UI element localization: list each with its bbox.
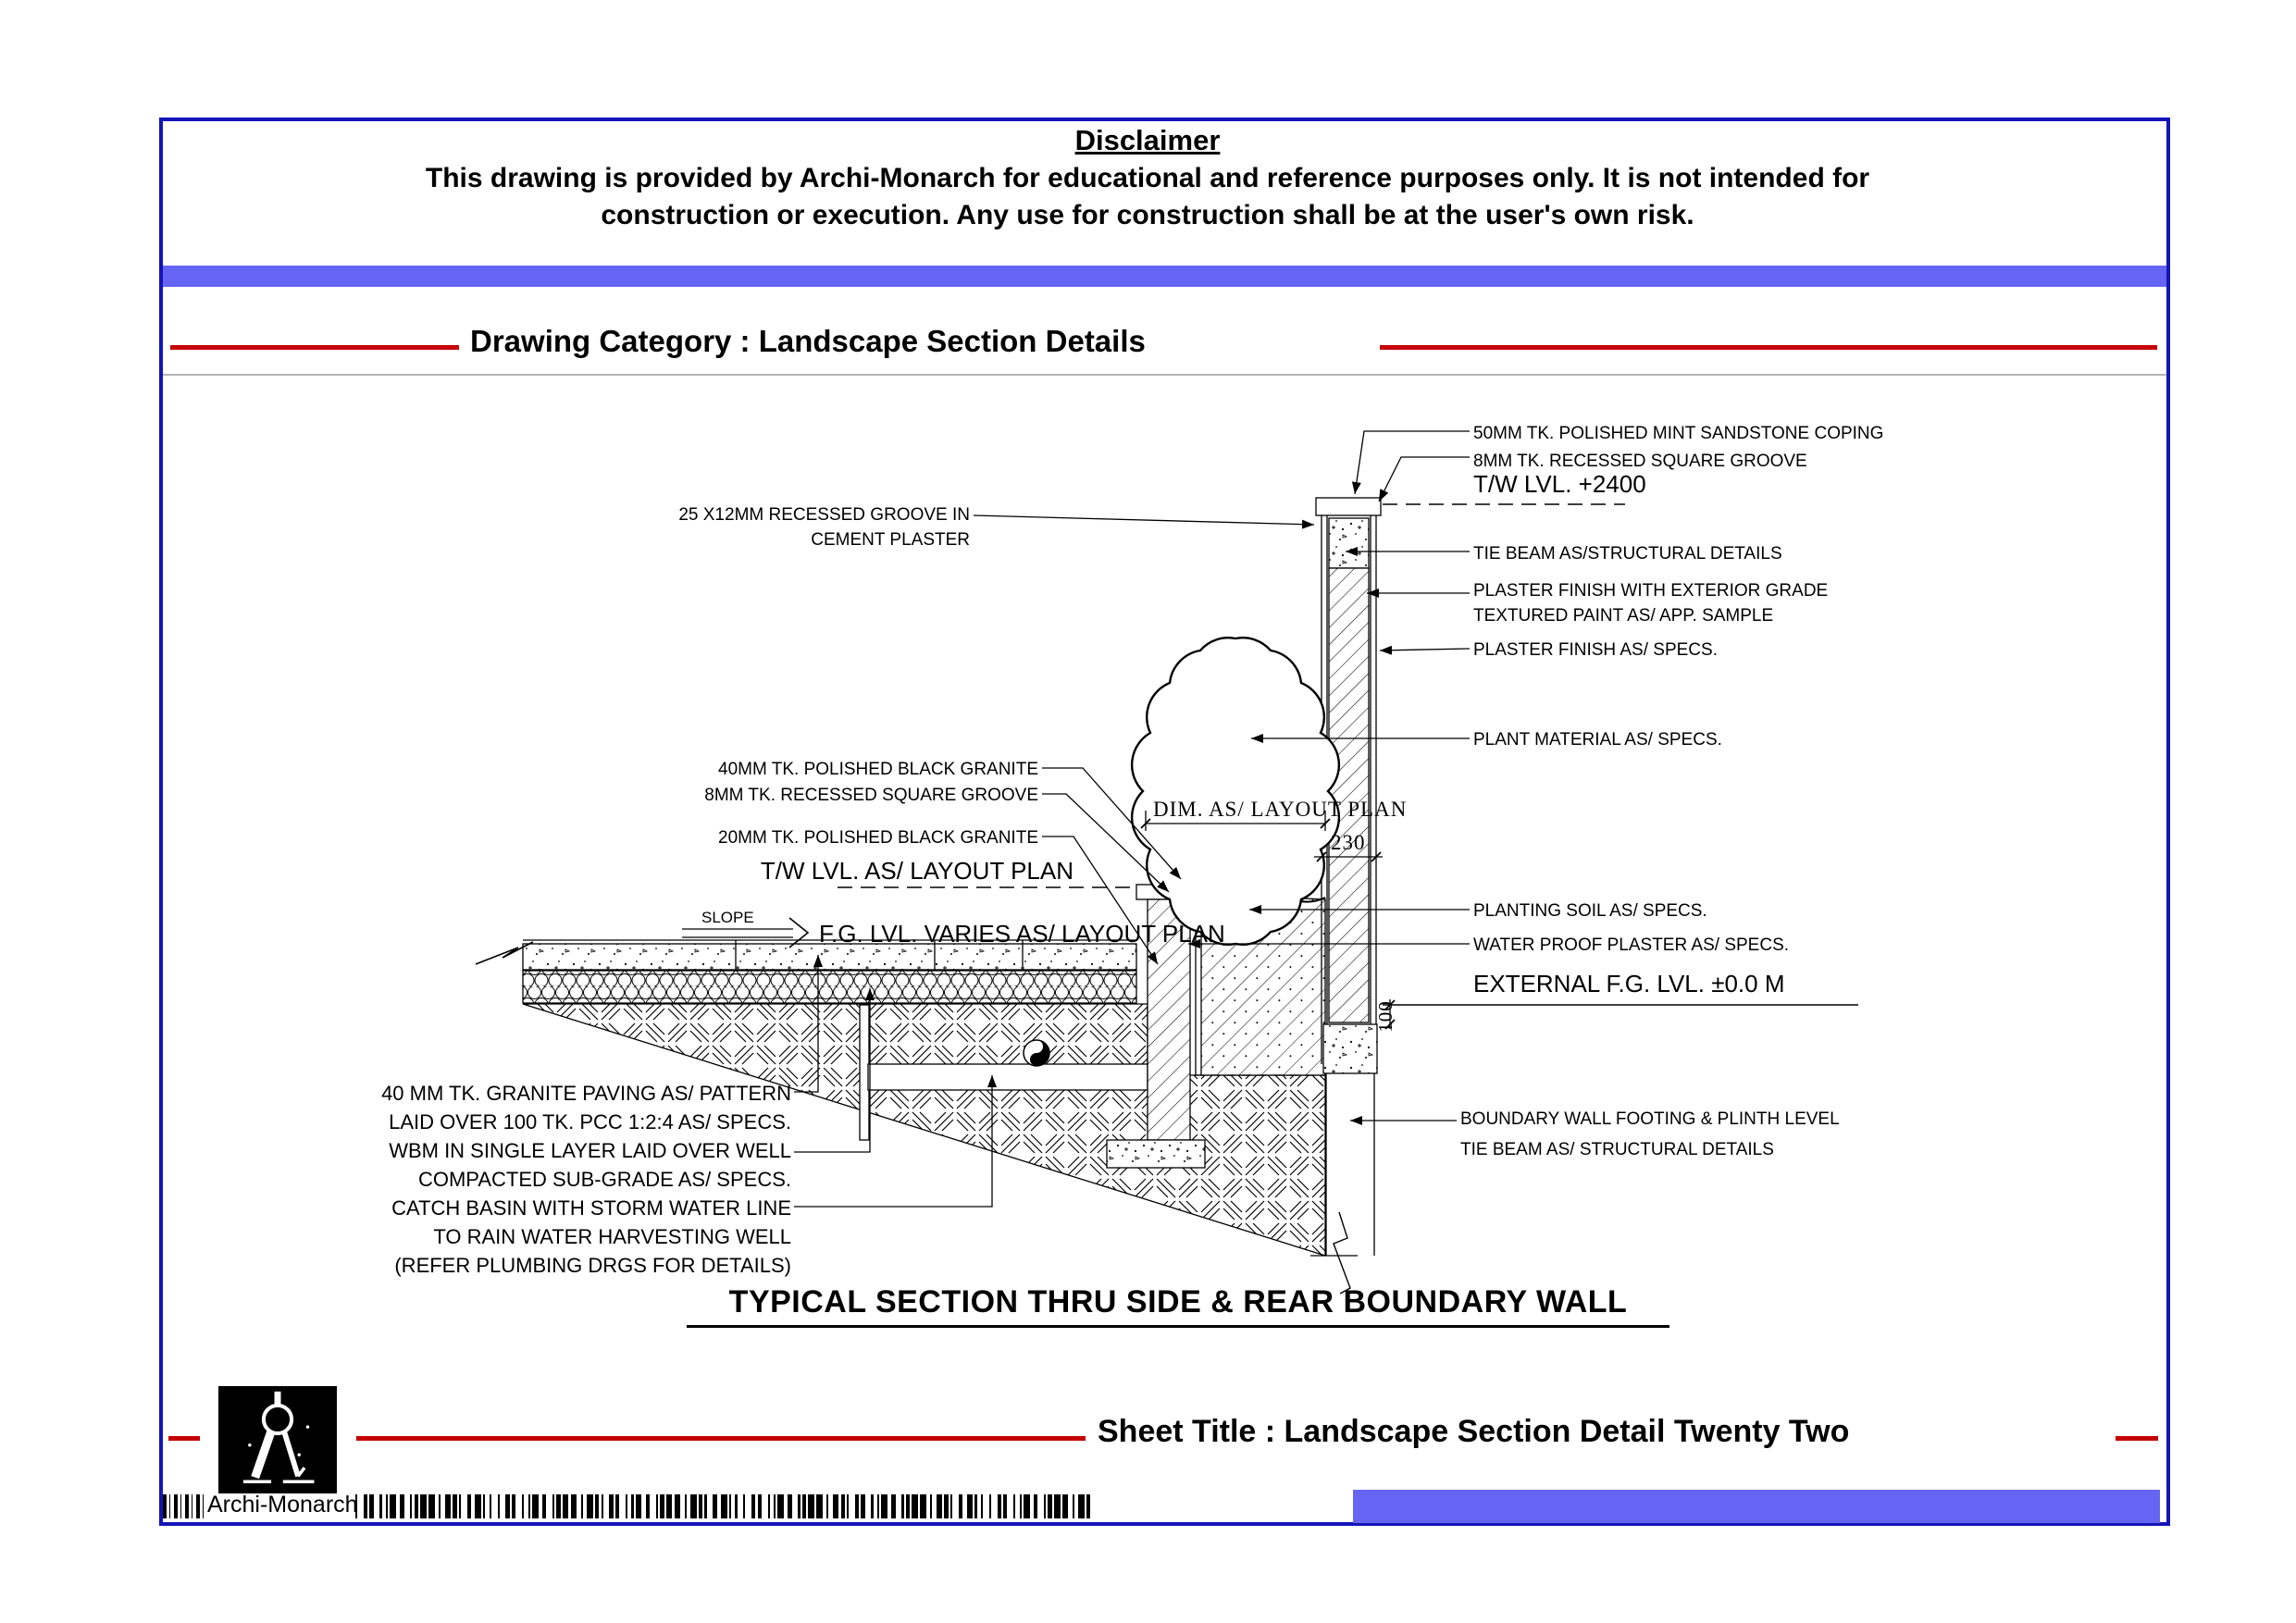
sheet-title: Sheet Title : Landscape Section Detail T… — [1098, 1414, 1849, 1450]
label-groove-8mm: 8MM TK. RECESSED SQUARE GROOVE — [483, 784, 1038, 809]
section-divider — [163, 374, 2166, 376]
dim-wall-thickness: 230 — [1331, 831, 1366, 855]
label-tw-level-layout: T/W LVL. AS/ LAYOUT PLAN — [611, 857, 1074, 886]
label-plant-material: PLANT MATERIAL AS/ SPECS. — [1473, 728, 1722, 753]
footer-rule-right-dash — [2116, 1436, 2158, 1441]
label-slope: SLOPE — [701, 907, 754, 929]
brand-name: Archi-Monarch — [207, 1492, 358, 1518]
disclaimer-line-1: This drawing is provided by Archi-Monarc… — [185, 163, 2110, 194]
label-plaster-specs: PLASTER FINISH AS/ SPECS. — [1473, 638, 1718, 663]
footer-rule-left-dash — [168, 1436, 200, 1441]
dim-footing-offset: 100 — [1374, 1000, 1397, 1033]
label-catch-basin: CATCH BASIN WITH STORM WATER LINE TO RAI… — [329, 1194, 791, 1281]
disclaimer-line-2: construction or execution. Any use for c… — [185, 200, 2110, 231]
label-granite-paving: 40 MM TK. GRANITE PAVING AS/ PATTERN LAI… — [329, 1079, 791, 1136]
label-wbm-layer: WBM IN SINGLE LAYER LAID OVER WELL COMPA… — [329, 1136, 791, 1194]
label-planting-soil: PLANTING SOIL AS/ SPECS. — [1473, 899, 1707, 924]
drawing-sheet: { "disclaimer": { "title": "Disclaimer",… — [0, 0, 2296, 1623]
label-waterproof-plaster: WATER PROOF PLASTER AS/ SPECS. — [1473, 934, 1789, 959]
category-rule-right — [1380, 345, 2157, 350]
compass-icon — [218, 1386, 337, 1493]
dim-planter-width: DIM. AS/ LAYOUT PLAN — [1153, 798, 1407, 822]
footer-blue-bar — [1353, 1490, 2160, 1523]
category-heading: Drawing Category : Landscape Section Det… — [470, 324, 1146, 359]
label-tie-beam: TIE BEAM AS/STRUCTURAL DETAILS — [1473, 542, 1782, 567]
label-plaster-textured: PLASTER FINISH WITH EXTERIOR GRADE TEXTU… — [1473, 579, 1828, 629]
label-sandstone-coping: 50MM TK. POLISHED MINT SANDSTONE COPING — [1473, 422, 1883, 447]
label-external-fg-level: EXTERNAL F.G. LVL. ±0.0 M — [1473, 970, 1785, 998]
footer-rule-center — [356, 1436, 1086, 1441]
label-granite-20mm: 20MM TK. POLISHED BLACK GRANITE — [483, 826, 1038, 851]
category-rule-left — [170, 345, 459, 350]
label-cement-plaster-groove: 25 X12MM RECESSED GROOVE IN CEMENT PLAST… — [415, 503, 970, 553]
label-wall-footing: BOUNDARY WALL FOOTING & PLINTH LEVEL TIE… — [1460, 1105, 1840, 1165]
section-title: TYPICAL SECTION THRU SIDE & REAR BOUNDAR… — [687, 1284, 1669, 1328]
disclaimer-title: Disclaimer — [185, 124, 2110, 157]
archi-monarch-logo — [218, 1386, 337, 1493]
label-tw-level-2400: T/W LVL. +2400 — [1473, 470, 1646, 499]
blue-divider-bar — [163, 266, 2166, 287]
barcode-left-segment — [163, 1494, 204, 1518]
barcode — [355, 1494, 1351, 1518]
label-fg-level-varies: F.G. LVL. VARIES AS/ LAYOUT PLAN — [819, 920, 1225, 948]
label-granite-40mm: 40MM TK. POLISHED BLACK GRANITE — [483, 758, 1038, 783]
